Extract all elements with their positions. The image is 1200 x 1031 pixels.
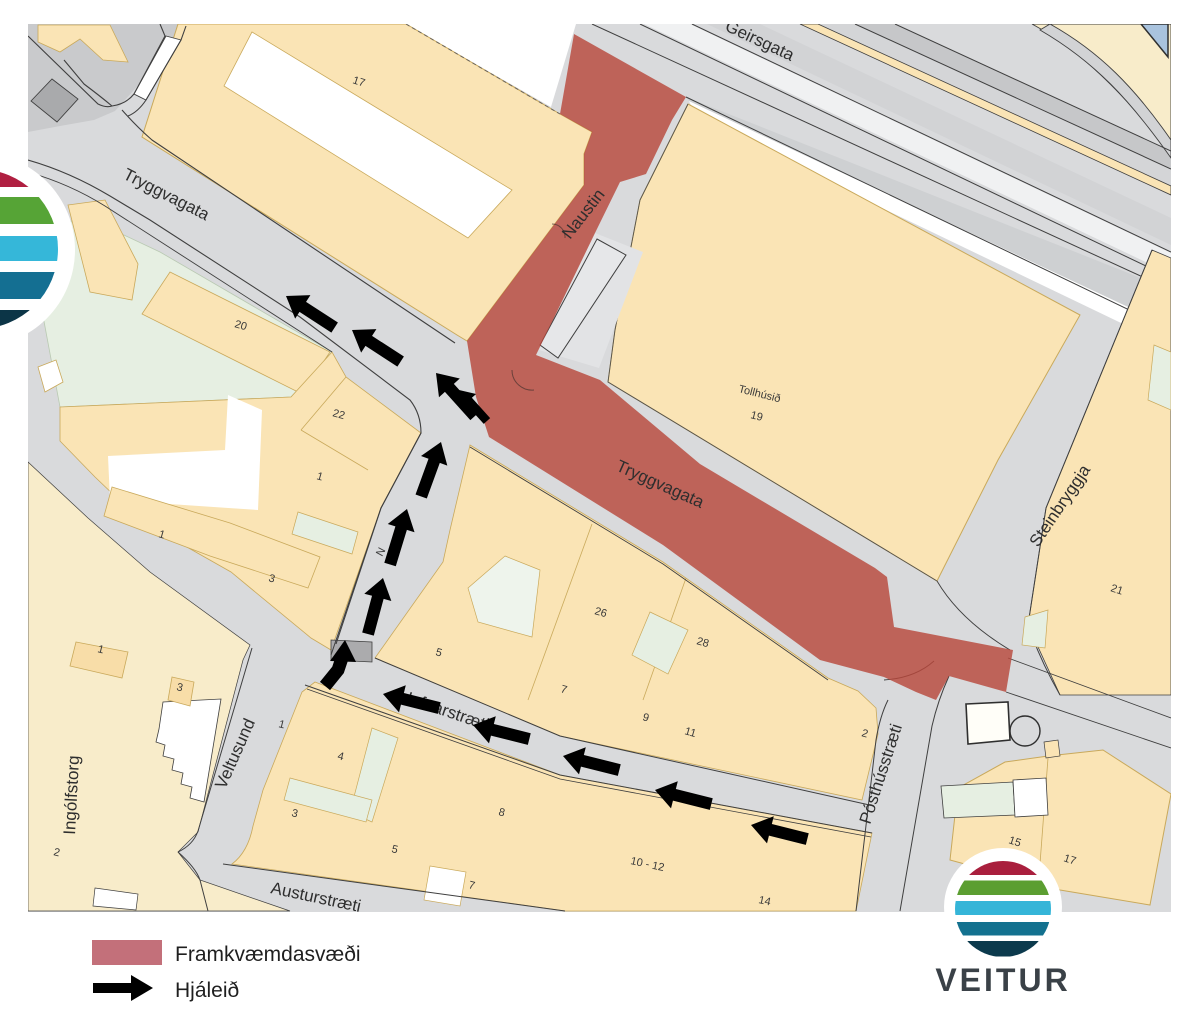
svg-text:14: 14	[757, 894, 771, 908]
svg-text:Hjáleið: Hjáleið	[175, 979, 239, 1002]
svg-text:Framkvæmdasvæði: Framkvæmdasvæði	[175, 943, 361, 966]
svg-text:VEITUR: VEITUR	[935, 962, 1070, 998]
